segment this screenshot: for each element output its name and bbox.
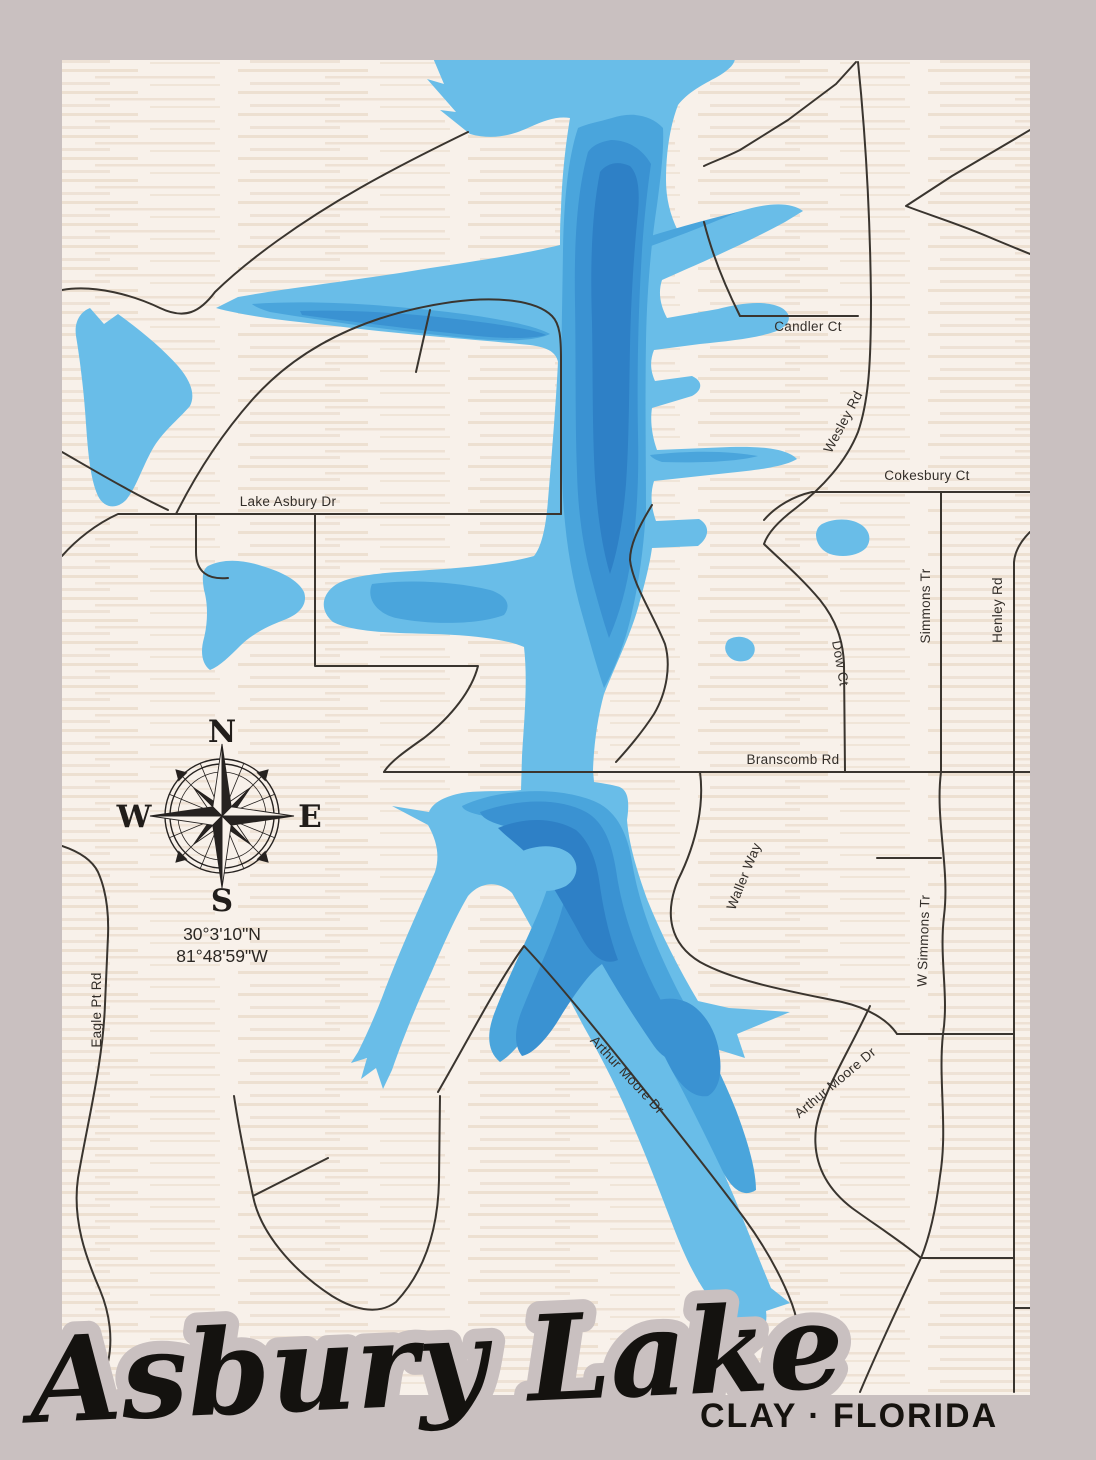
compass-letter-west: W xyxy=(116,799,153,835)
road-label-candler-ct: Candler Ct xyxy=(774,319,842,334)
compass-letter-north: N xyxy=(208,714,236,750)
pond-east-small xyxy=(816,520,869,557)
road-label-simmons-tr: Simmons Tr xyxy=(918,568,933,643)
lake-map-poster: Candler Ct Wesley Rd Cokesbury Ct Lake A… xyxy=(0,0,1096,1460)
map-subtitle: CLAY · FLORIDA xyxy=(700,1397,998,1435)
road-label-eagle-pt-rd: Eagle Pt Rd xyxy=(89,972,104,1047)
road-label-lake-asbury-dr: Lake Asbury Dr xyxy=(240,494,337,509)
map-canvas: Candler Ct Wesley Rd Cokesbury Ct Lake A… xyxy=(0,0,1096,1460)
compass-letter-south: S xyxy=(211,883,233,919)
road-label-cokesbury-ct: Cokesbury Ct xyxy=(884,468,969,483)
coordinate-longitude: 81°48'59"W xyxy=(176,946,268,966)
map-area: Candler Ct Wesley Rd Cokesbury Ct Lake A… xyxy=(62,58,1030,1395)
road-label-henley-rd: Henley Rd xyxy=(990,577,1005,643)
coordinate-latitude: 30°3'10"N xyxy=(183,924,261,944)
compass-letter-east: E xyxy=(298,799,322,835)
lake-shallow-window xyxy=(516,846,577,891)
road-label-branscomb-rd: Branscomb Rd xyxy=(747,752,840,767)
